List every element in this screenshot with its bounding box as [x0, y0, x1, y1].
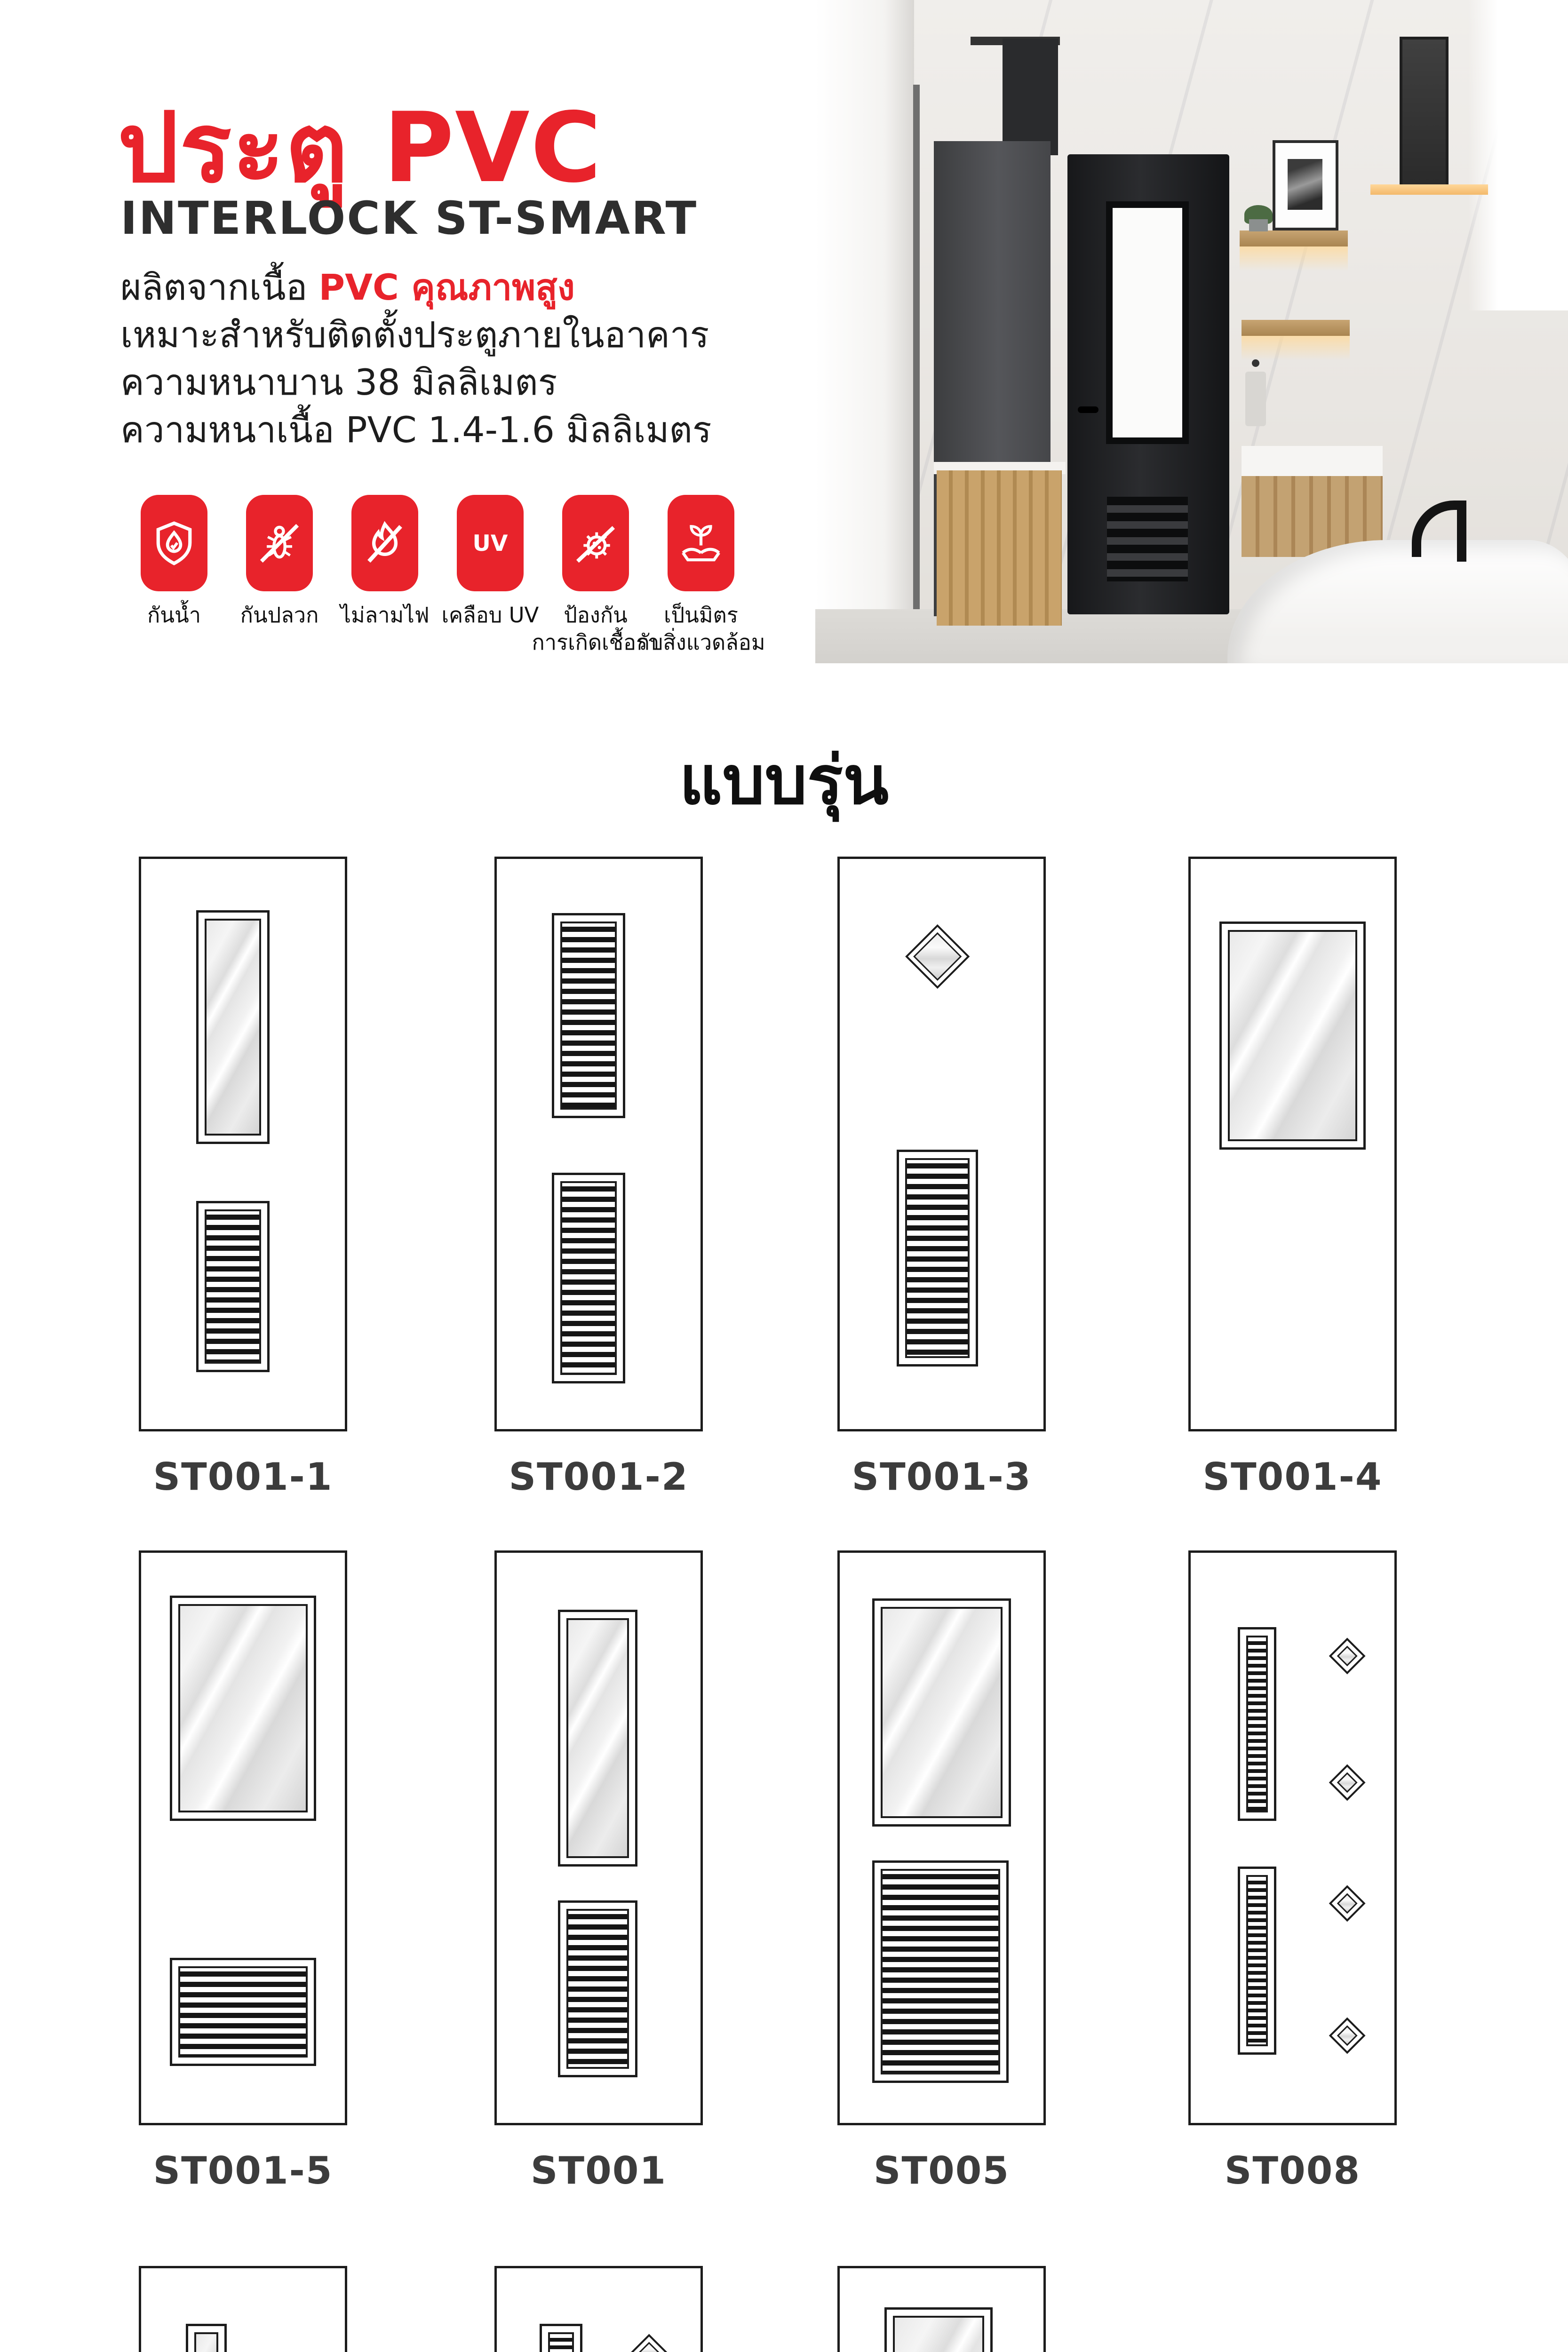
- glass-panel: [186, 2324, 227, 2352]
- no-termite-icon: [246, 495, 313, 591]
- left-wall: [815, 0, 914, 663]
- diamond-glass-pane: [1337, 1772, 1357, 1793]
- door-model-ST001-2: [494, 857, 703, 1431]
- bright-window: [1468, 0, 1568, 310]
- door-model-ST035: [837, 2266, 1046, 2352]
- glass-panel: [1219, 922, 1366, 1150]
- louver-vent: [196, 1201, 270, 1372]
- door-model-ST010: [494, 2266, 703, 2352]
- plant-pot: [1249, 219, 1268, 231]
- glass-pane: [1228, 930, 1358, 1141]
- glass-panel: [872, 1598, 1011, 1827]
- louver-slats: [560, 1181, 617, 1375]
- uv-coating-icon: UV: [457, 495, 524, 591]
- door-model-ST001: [494, 1550, 703, 2125]
- louver-vent: [897, 1150, 978, 1367]
- door-model-label: ST001-1: [139, 1455, 347, 1499]
- waterproof-shield-icon: [141, 495, 207, 591]
- door-model-label: ST001-3: [837, 1455, 1046, 1499]
- glass-pane: [178, 1604, 308, 1812]
- door-model-ST005: [837, 1550, 1046, 2125]
- no-flame-icon: [351, 495, 418, 591]
- louver-vent: [558, 1900, 637, 2077]
- eco-friendly-icon: [668, 495, 734, 591]
- black-pvc-door: [1067, 154, 1229, 614]
- louver-vent: [1238, 1867, 1276, 2055]
- door-model-ST008: [1188, 1550, 1397, 2125]
- brochure-page: ประตู PVC INTERLOCK ST-SMART ผลิตจากเนื้…: [0, 0, 1568, 2352]
- louver-vent: [1238, 1627, 1276, 1821]
- towel: [1245, 372, 1266, 426]
- product-description: ผลิตจากเนื้อ PVC คุณภาพสูง เหมาะสำหรับติ…: [120, 263, 826, 453]
- picture-frame: [1273, 140, 1338, 230]
- door-model-label: ST001-2: [494, 1455, 703, 1499]
- shelf-underglow: [1242, 336, 1350, 360]
- page-subtitle: INTERLOCK ST-SMART: [120, 192, 698, 245]
- louver-vent: [872, 1860, 1009, 2083]
- diamond-glass-pane: [1337, 2025, 1357, 2046]
- louver-slats: [560, 922, 617, 1110]
- louver-vent: [552, 913, 625, 1118]
- description-line: เหมาะสำหรับติดตั้งประตูภายในอาคาร: [120, 311, 826, 358]
- faucet-spout: [1457, 510, 1466, 562]
- door-model-ST001-1: [139, 857, 347, 1431]
- louver-vent: [170, 1958, 317, 2066]
- hero-bathroom-photo: [815, 0, 1568, 663]
- door-louver-vent: [1107, 497, 1188, 581]
- towel-hook: [1252, 359, 1259, 367]
- diamond-glass-insert: [1329, 1764, 1365, 1801]
- feature-item: เป็นมิตรกับสิ่งแวดล้อม: [648, 495, 754, 656]
- diamond-glass-pane: [913, 932, 962, 981]
- wood-vanity: [937, 470, 1062, 626]
- wood-shelf-lower: [1242, 320, 1350, 336]
- abstract-art: [1288, 159, 1322, 210]
- louver-slats: [548, 2332, 574, 2352]
- door-frosted-glass: [1106, 201, 1189, 444]
- glass-pane: [194, 2332, 218, 2352]
- description-lines: เหมาะสำหรับติดตั้งประตูภายในอาคารความหนา…: [120, 311, 826, 453]
- wall-edge: [913, 85, 920, 663]
- wood-shelf-upper: [1240, 230, 1348, 246]
- diamond-glass-insert: [1329, 2017, 1365, 2054]
- door-model-label: ST001: [494, 2149, 703, 2193]
- diamond-glass-insert: [905, 924, 970, 989]
- door-model-ST001-4: [1188, 857, 1397, 1431]
- feature-item: กันปลวก: [227, 495, 332, 656]
- glass-panel: [558, 1610, 637, 1866]
- description-line: ความหนาบาน 38 มิลลิเมตร: [120, 358, 826, 406]
- diamond-glass-pane: [1337, 1646, 1357, 1667]
- wall-mirror: [1400, 37, 1449, 192]
- dark-transom: [1003, 39, 1058, 155]
- diamond-glass-insert: [1329, 1638, 1365, 1675]
- feature-item: ไม่ลามไฟ: [332, 495, 438, 656]
- glass-pane: [881, 1607, 1002, 1818]
- louver-slats: [1246, 1636, 1268, 1812]
- diamond-glass-pane: [1337, 1893, 1357, 1914]
- diamond-glass-pane: [638, 2342, 659, 2352]
- door-model-ST009: [139, 2266, 347, 2352]
- louver-slats: [566, 1909, 629, 2069]
- glass-panel: [884, 2307, 992, 2352]
- diamond-glass-insert: [630, 2334, 667, 2352]
- door-model-label: ST005: [837, 2149, 1046, 2193]
- feature-badges: กันน้ำกันปลวกไม่ลามไฟUVเคลือบ UVป้องกันก…: [121, 495, 754, 656]
- feature-label: เป็นมิตรกับสิ่งแวดล้อม: [623, 602, 779, 656]
- louver-slats: [205, 1209, 261, 1364]
- glass-panel: [196, 910, 270, 1144]
- glass-pane: [893, 2316, 984, 2352]
- louver-slats: [178, 1966, 308, 2058]
- description-line: ความหนาเนื้อ PVC 1.4-1.6 มิลลิเมตร: [120, 406, 826, 453]
- glass-pane: [205, 919, 261, 1136]
- anti-mold-icon: [562, 495, 629, 591]
- glass-panel: [170, 1596, 317, 1821]
- louver-slats: [881, 1869, 1000, 2074]
- feature-item: กันน้ำ: [121, 495, 227, 656]
- door-model-ST001-3: [837, 857, 1046, 1431]
- door-model-ST001-5: [139, 1550, 347, 2125]
- door-model-label: ST001-4: [1188, 1455, 1397, 1499]
- shelf-underglow: [1240, 246, 1348, 271]
- door-model-label: ST001-5: [139, 2149, 347, 2193]
- door-model-label: ST008: [1188, 2149, 1397, 2193]
- cabinet-top: [1242, 446, 1383, 477]
- description-line: ผลิตจากเนื้อ PVC คุณภาพสูง: [120, 263, 826, 311]
- louver-slats: [905, 1158, 970, 1358]
- louver-slats: [1246, 1875, 1268, 2046]
- glass-pane: [566, 1618, 629, 1858]
- description-highlight: PVC คุณภาพสูง: [318, 266, 574, 308]
- door-handle: [1078, 406, 1098, 413]
- warm-led-light: [1370, 184, 1488, 195]
- section-title-models: แบบรุ่น: [0, 727, 1568, 833]
- louver-vent: [552, 1173, 625, 1383]
- louver-vent: [540, 2324, 582, 2352]
- diamond-glass-insert: [1329, 1885, 1365, 1922]
- svg-text:UV: UV: [473, 530, 508, 556]
